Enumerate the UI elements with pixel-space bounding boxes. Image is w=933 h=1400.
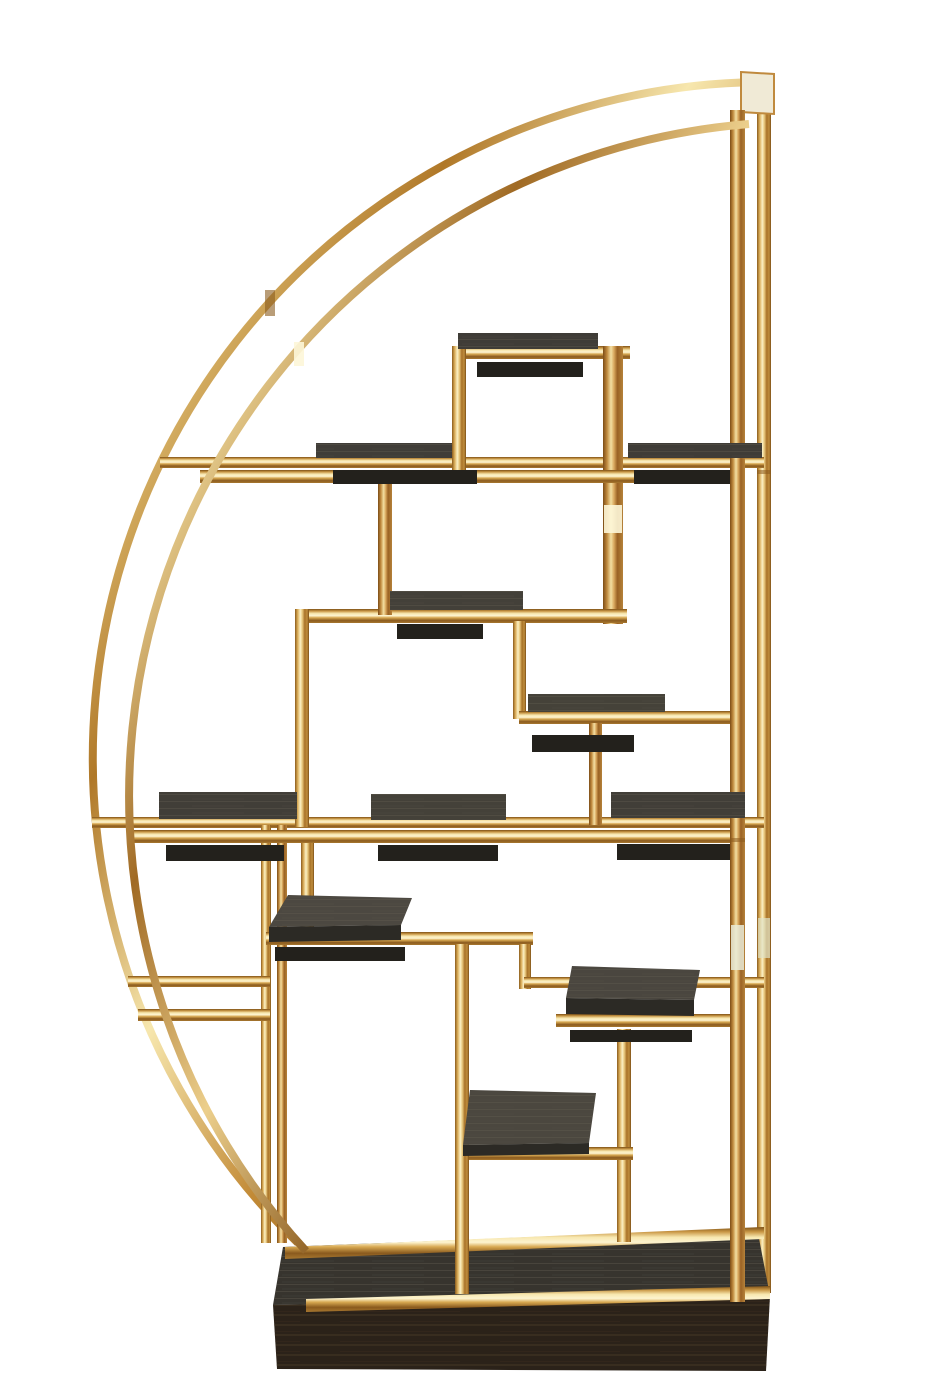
glint-front-post xyxy=(731,925,744,970)
seam-front-post xyxy=(730,838,745,842)
midbox-left-vert xyxy=(295,609,309,827)
apex-cap xyxy=(741,72,774,114)
left-pair-post-a xyxy=(261,825,271,1243)
step-shelf-rail xyxy=(519,711,745,724)
lower-right-vert xyxy=(617,1029,631,1242)
shelf-t1-edge xyxy=(269,925,401,942)
back-arc xyxy=(93,82,757,1243)
product-photo xyxy=(0,0,933,1400)
shelf-step-grain xyxy=(528,694,665,712)
front-arc xyxy=(129,124,749,1251)
shelf-t3-top-grain xyxy=(463,1090,596,1145)
left-pair-post-b xyxy=(277,825,287,1243)
shelf-t3-edge xyxy=(463,1143,589,1156)
shelf-a2-grain xyxy=(628,443,762,458)
shelf-mid-grain xyxy=(390,591,523,610)
shelf-shadow-t1 xyxy=(275,947,405,961)
front-right-post xyxy=(730,110,745,1302)
shelf-b2-grain xyxy=(371,794,506,820)
rightbox-front-rail xyxy=(556,1014,737,1027)
shade-back-arc xyxy=(265,290,275,316)
leftbox-top-rail xyxy=(128,976,270,987)
rail-a-drop-vert xyxy=(378,478,392,615)
shelf-shadow-t2 xyxy=(570,1030,692,1042)
shelf-t1-top-grain xyxy=(269,895,412,927)
shelf-b1-grain xyxy=(159,792,297,819)
shelf-shadow-mid xyxy=(397,624,483,639)
midbox-rail xyxy=(295,609,627,623)
center-vert xyxy=(603,346,623,624)
glint-back-post xyxy=(758,918,770,958)
etagere-illustration xyxy=(0,0,933,1400)
shelf-shadow-b3 xyxy=(617,844,735,860)
shelf-shadow-b2 xyxy=(378,845,498,861)
shelf-top-frame-grain xyxy=(458,333,598,349)
etagere-frame xyxy=(92,72,774,1371)
shelf-t2-top-grain xyxy=(566,966,700,1000)
rail-b-front xyxy=(130,830,737,843)
shelf-a1-grain xyxy=(316,443,452,458)
back-right-post xyxy=(757,78,771,1293)
shelf-shadow-b1 xyxy=(166,845,284,861)
glint-center-vert xyxy=(604,505,622,533)
top-frame-left-vert xyxy=(452,346,466,477)
shelf-b3-grain xyxy=(611,792,745,818)
glint-front-arc xyxy=(294,342,304,366)
shelf-shadow-a2 xyxy=(634,470,730,484)
leftbox-bottom-rail xyxy=(138,1009,270,1021)
seam-back-post xyxy=(757,470,771,474)
shelf-shadow-step xyxy=(532,735,634,752)
shelf-shadow-a1 xyxy=(333,470,477,484)
shelf-shadow-top xyxy=(477,362,583,377)
shelf-t2-edge xyxy=(566,998,694,1016)
step-vert xyxy=(513,621,526,719)
